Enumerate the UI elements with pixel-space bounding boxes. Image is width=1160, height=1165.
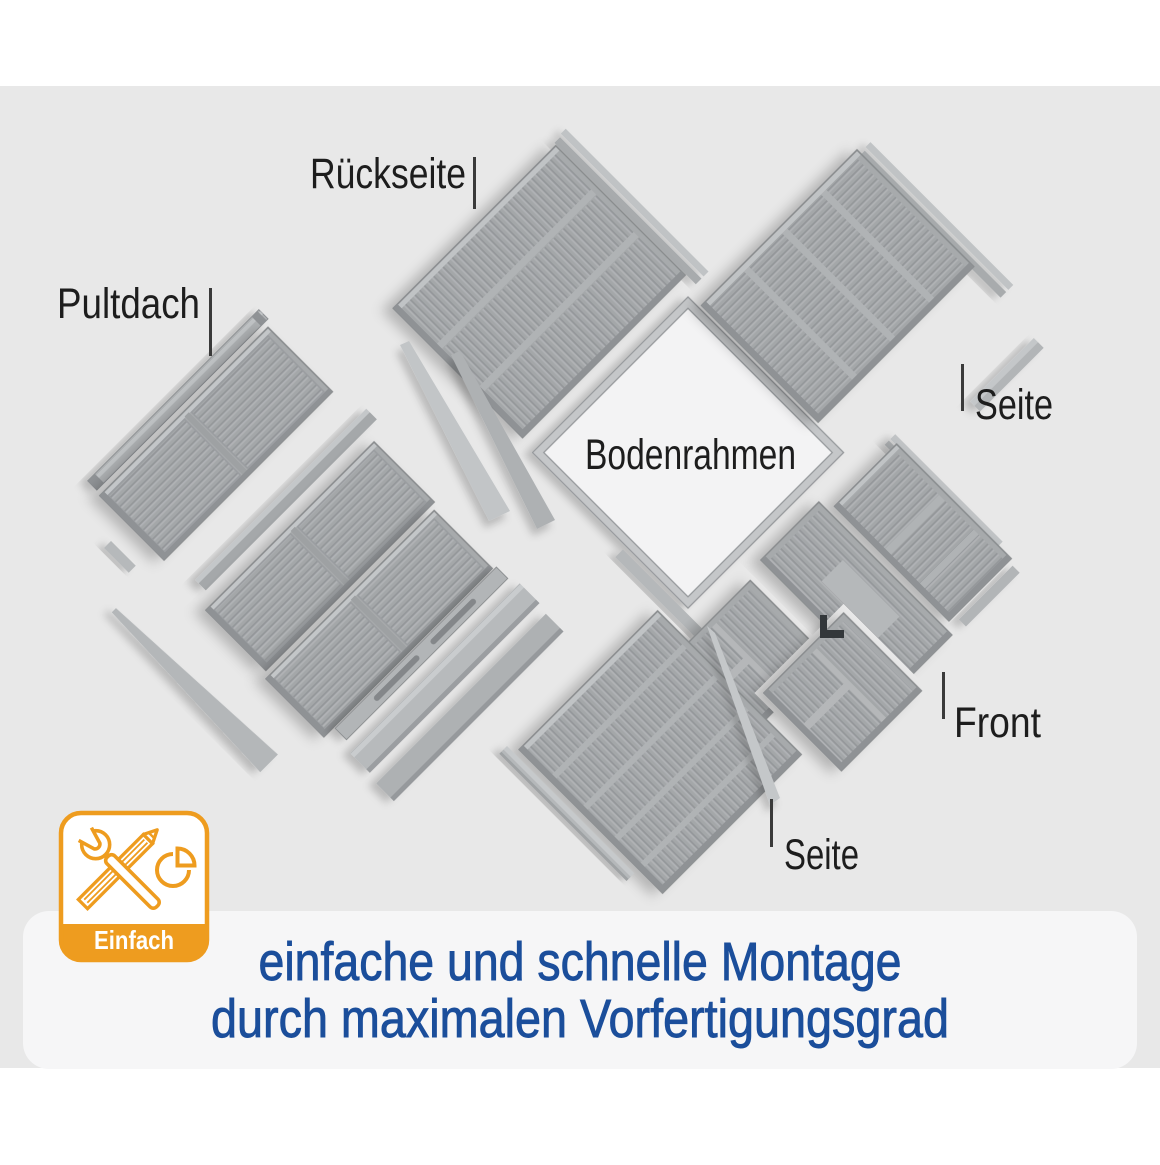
svg-text:Pultdach: Pultdach	[57, 280, 200, 328]
svg-text:Seite: Seite	[784, 831, 859, 879]
svg-text:durch maximalen Vorfertigungsg: durch maximalen Vorfertigungsgrad	[211, 989, 949, 1049]
svg-text:Seite: Seite	[975, 381, 1053, 429]
svg-text:einfache und schnelle Montage: einfache und schnelle Montage	[259, 932, 902, 992]
svg-text:Rückseite: Rückseite	[310, 150, 466, 198]
svg-text:Front: Front	[954, 699, 1041, 747]
svg-text:Bodenrahmen: Bodenrahmen	[585, 431, 796, 479]
svg-text:Einfach: Einfach	[94, 925, 174, 955]
